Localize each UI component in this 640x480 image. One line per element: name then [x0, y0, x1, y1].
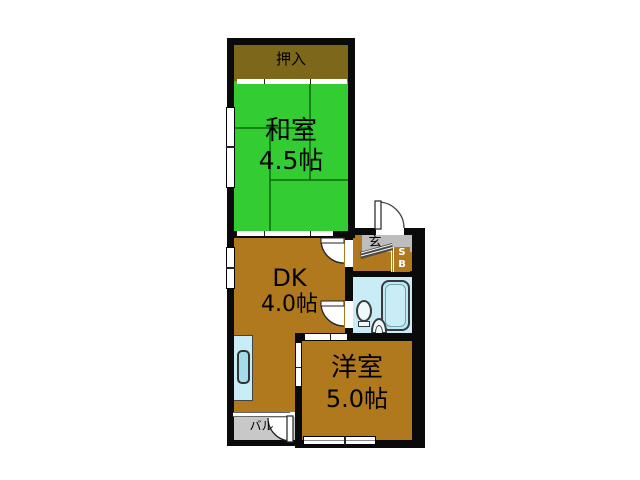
balcony-label: バル — [233, 420, 290, 433]
fusuma-tick — [310, 231, 311, 236]
slider-tick — [330, 334, 331, 340]
tatami-line — [270, 179, 348, 181]
tatami-room-size: 4.5帖 — [234, 148, 348, 174]
toilet — [356, 300, 372, 322]
entrance-opening — [376, 228, 404, 235]
fusuma-tick — [264, 231, 265, 236]
western-room-size: 5.0帖 — [302, 387, 412, 412]
wall-balcony-bottom — [227, 440, 302, 446]
closet-label: 押入 — [234, 52, 348, 68]
dk-label: DK — [234, 266, 345, 291]
fusuma-tick — [310, 79, 311, 84]
toilet-base — [358, 321, 370, 327]
outer-wall-top — [227, 38, 355, 45]
fusuma-closet — [237, 79, 347, 84]
slider-tick — [296, 367, 301, 368]
fusuma-washitsu-dk — [237, 231, 333, 236]
kitchen-sink — [237, 350, 250, 384]
floorplan-canvas: S B 押入 和室 4.5帖 DK 4.0帖 洋室 5.0帖 玄 バル — [0, 0, 640, 480]
dk-yoshitsu-slider-h — [305, 334, 347, 340]
dk-yoshitsu-slider-v — [296, 343, 301, 386]
western-room-label: 洋室 — [302, 355, 412, 382]
bathtub-inner — [385, 284, 406, 327]
shoebox: S B — [391, 247, 410, 272]
fusuma-tick — [264, 79, 265, 84]
window-midline — [304, 440, 375, 441]
balcony-sill — [233, 412, 290, 417]
shoebox-letter-s: S — [394, 247, 410, 259]
dk-bathroom-door-opening — [345, 301, 353, 328]
genkan-label: 玄 — [362, 236, 388, 250]
shoebox-letter-b: B — [394, 259, 410, 271]
tatami-room-label: 和室 — [234, 118, 348, 145]
dk-hall-door-opening — [345, 240, 353, 267]
window-tick — [344, 436, 346, 445]
outer-wall-right-upper — [348, 38, 355, 238]
dk-size: 4.0帖 — [234, 293, 345, 316]
